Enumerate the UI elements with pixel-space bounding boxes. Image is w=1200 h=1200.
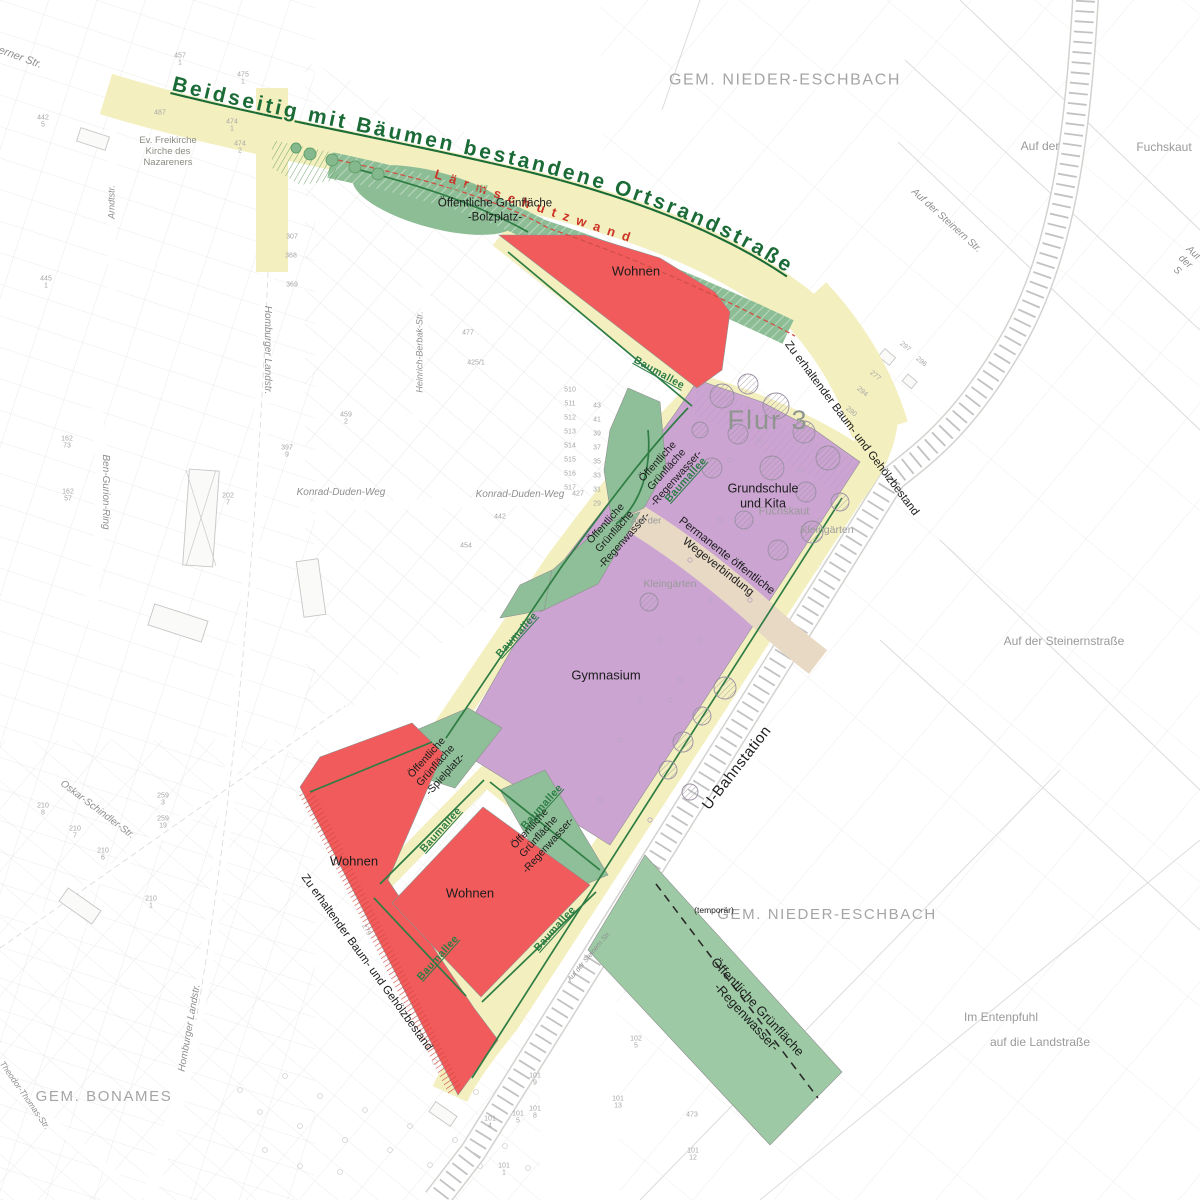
map-canvas: Beidseitig mit Bäumen bestandene Ortsran… [0,0,1200,1200]
zoning-plan-map: Beidseitig mit Bäumen bestandene Ortsran… [0,0,1200,1200]
